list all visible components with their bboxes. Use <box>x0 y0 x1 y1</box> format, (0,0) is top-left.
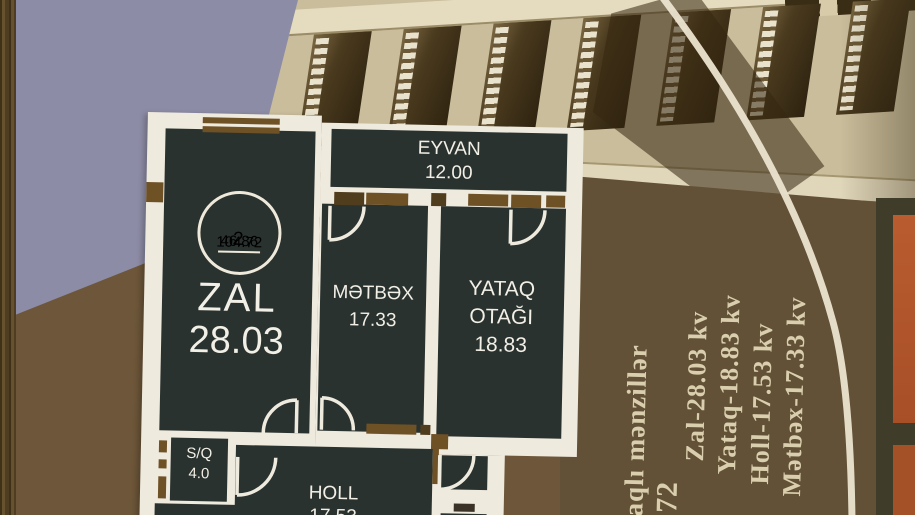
room-yataq-area: 18.83 <box>438 330 564 361</box>
total-area: 104.72 <box>216 232 262 251</box>
orange-panel-upper <box>893 215 915 423</box>
spec-holl: Holl-17.53 kv <box>745 322 779 485</box>
door-arc <box>263 399 297 433</box>
room-sq-area: 4.0 <box>170 464 227 485</box>
floor-plan: 2 46.86 104.72 ZAL 28.03 MƏTBƏX 17.33 YA… <box>139 110 591 515</box>
door-arc <box>321 398 354 431</box>
brochure-photo: taqlı mənzillər .72 Zal-28.03 kv Yataq-1… <box>0 0 915 515</box>
spec-zal: Zal-28.03 kv <box>680 310 714 461</box>
room-yataq-label: YATAQ OTAĞI 18.83 <box>438 274 565 361</box>
room-metbex-area: 17.33 <box>319 306 426 335</box>
building-corner-shade <box>840 0 915 228</box>
door-arc <box>510 210 545 245</box>
room-metbex-label: MƏTBƏX 17.33 <box>319 279 426 335</box>
orange-side-panel <box>876 198 915 515</box>
room-yataq-name-2: OTAĞI <box>438 302 564 333</box>
room-metbex-name: MƏTBƏX <box>320 279 427 308</box>
door-arc <box>439 455 474 490</box>
spec-title-partial: taqlı mənzillər <box>618 344 654 515</box>
spec-metbex: Mətbəx-17.33 kv <box>777 296 812 497</box>
room-eyvan-label: EYVAN 12.00 <box>331 135 568 188</box>
room-zal-area: 28.03 <box>161 317 312 366</box>
room-sq-label: S/Q 4.0 <box>170 444 228 485</box>
room-eyvan-area: 12.00 <box>331 159 567 188</box>
spec-number-partial: .72 <box>650 481 685 515</box>
room-yataq-name-1: YATAQ <box>439 274 565 305</box>
orange-panel-lower <box>893 445 915 515</box>
door-arc <box>329 206 364 241</box>
spec-yataq: Yataq-18.83 kv <box>712 294 747 475</box>
room-sq-name: S/Q <box>171 444 228 465</box>
room-zal-label: ZAL <box>162 272 313 323</box>
wood-table-edge <box>0 0 16 515</box>
room-holl-label: HOLL 17.53 <box>234 480 432 515</box>
